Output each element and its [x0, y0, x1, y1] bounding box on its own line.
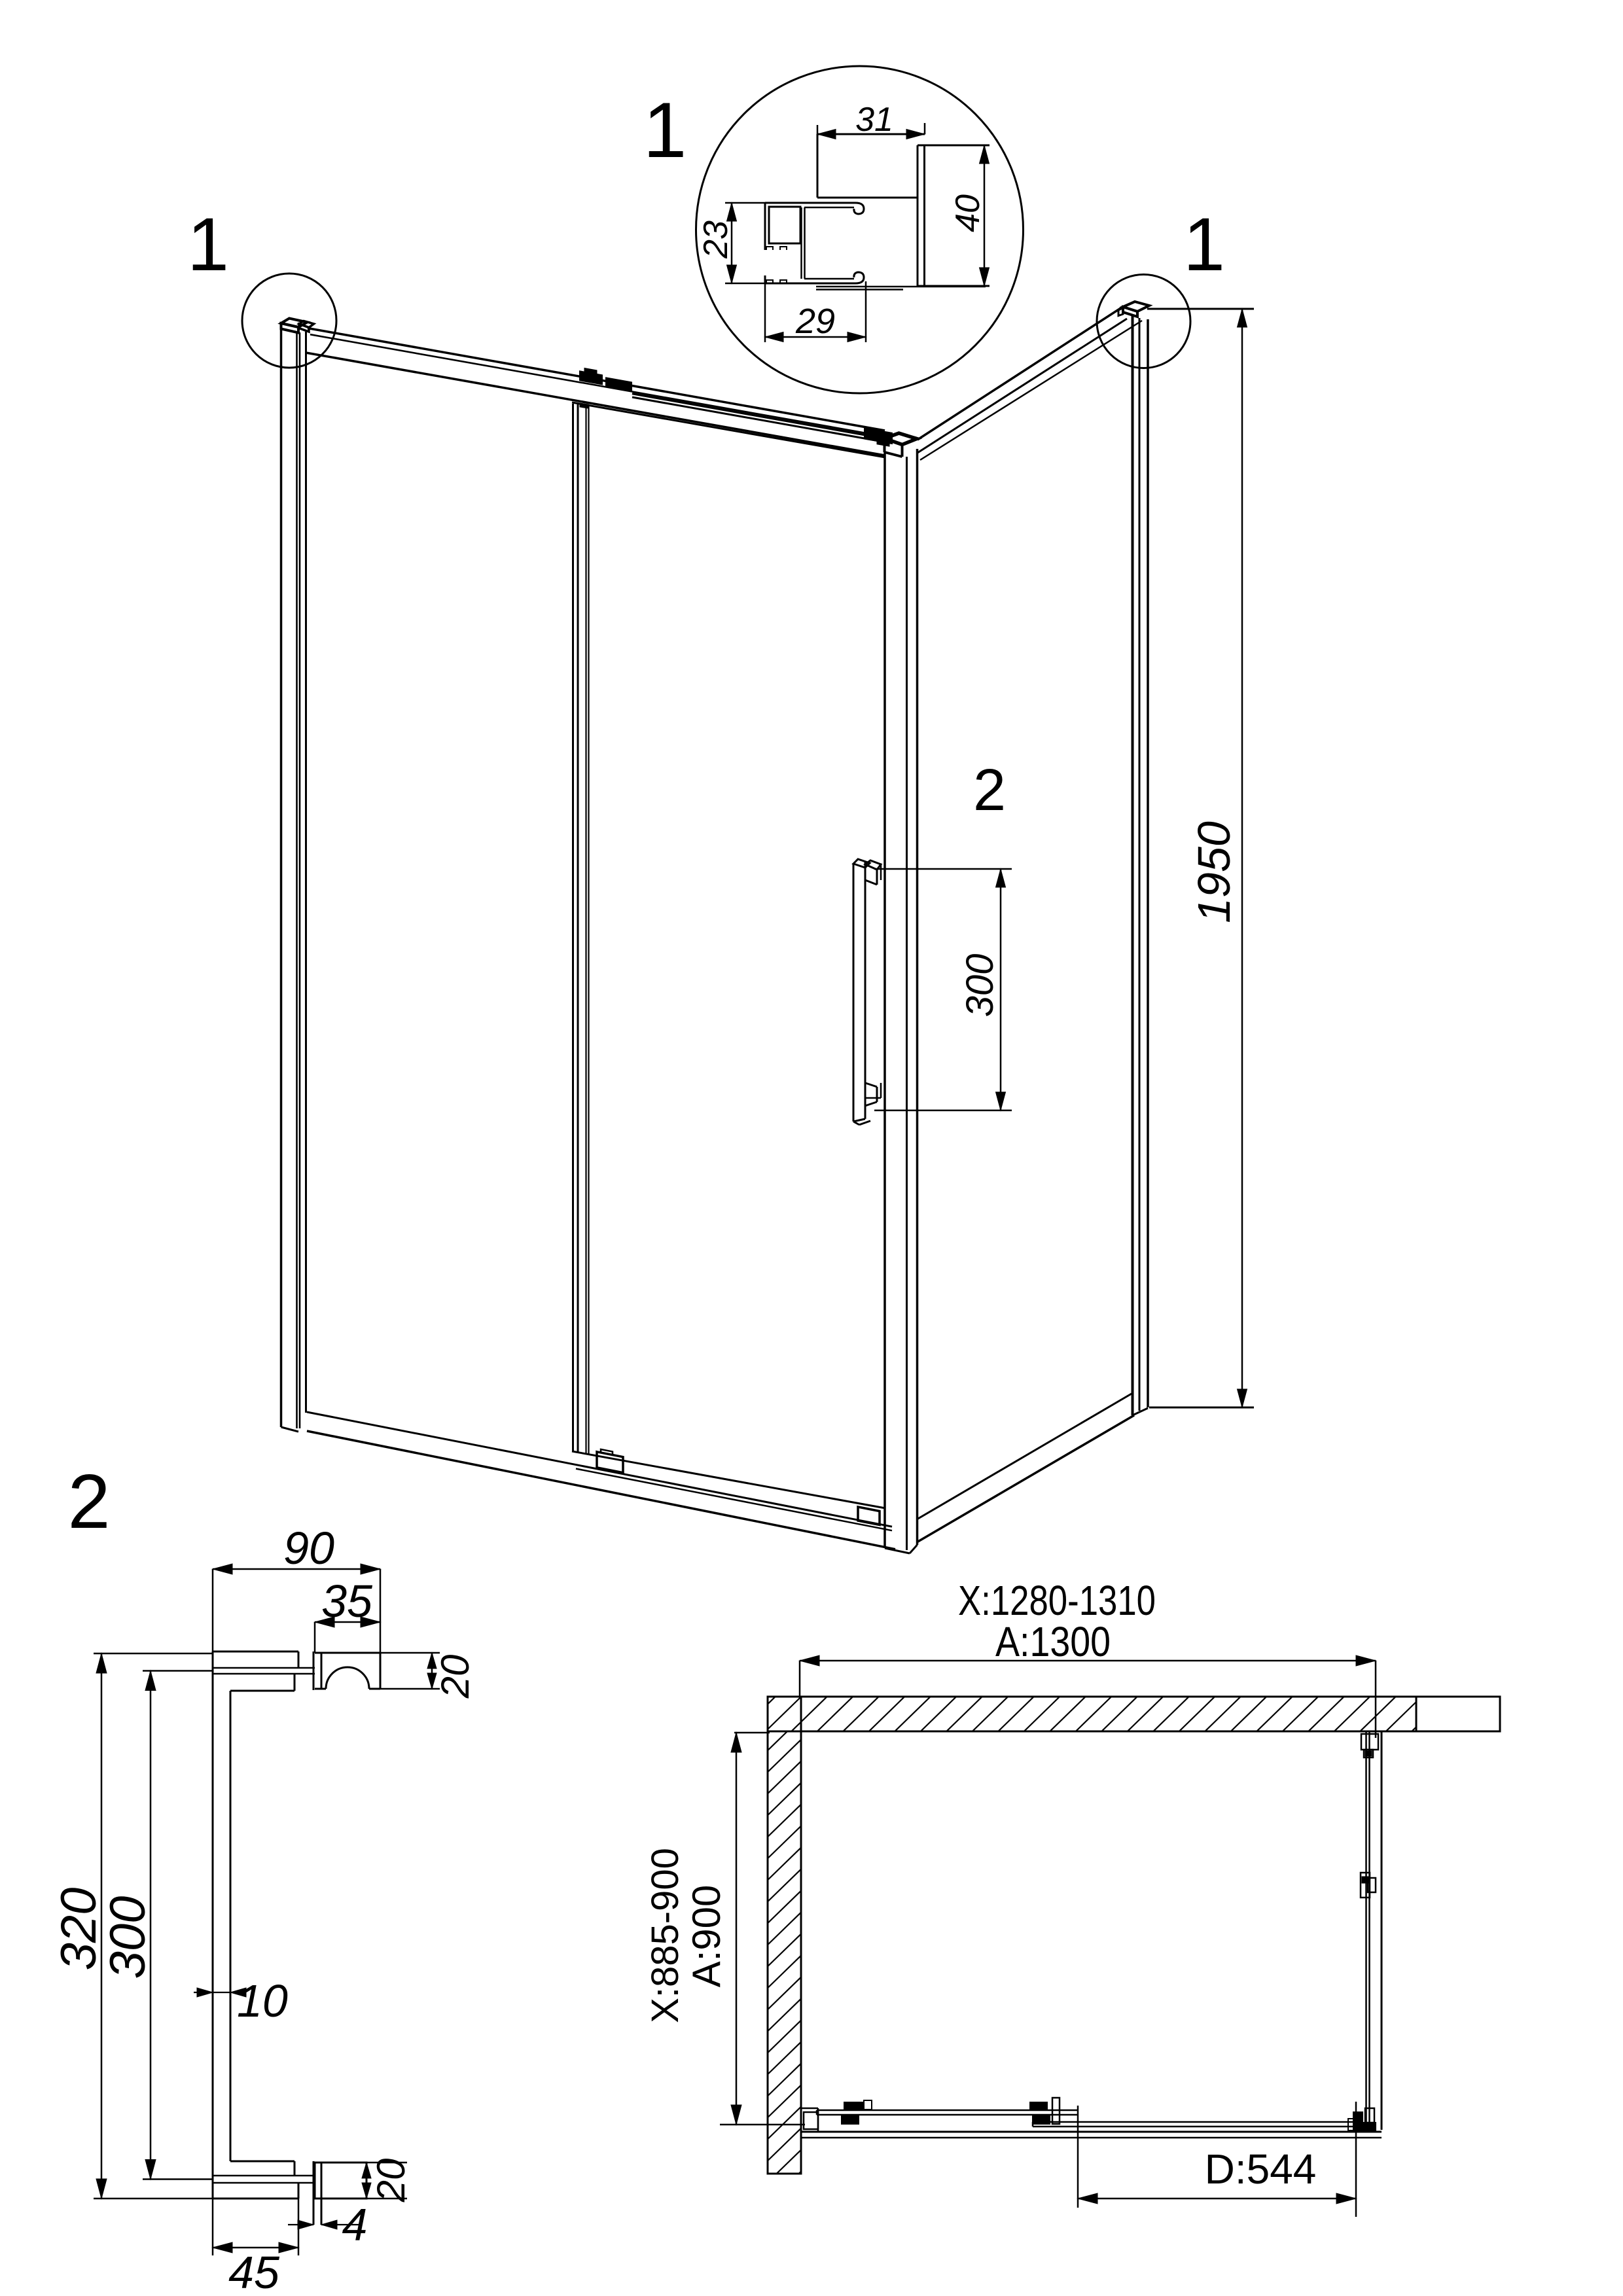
svg-text:1950: 1950 — [1188, 821, 1240, 923]
svg-text:320: 320 — [51, 1888, 107, 1971]
svg-text:1: 1 — [1183, 203, 1225, 287]
svg-text:40: 40 — [949, 194, 987, 232]
svg-text:300: 300 — [959, 954, 1001, 1017]
svg-text:10: 10 — [237, 1975, 288, 2026]
svg-text:1: 1 — [643, 86, 687, 174]
svg-text:D:544: D:544 — [1205, 2146, 1317, 2193]
svg-text:20: 20 — [369, 2159, 413, 2203]
svg-text:2: 2 — [973, 758, 1006, 823]
svg-text:4: 4 — [342, 2199, 368, 2250]
svg-text:2: 2 — [67, 1458, 110, 1544]
svg-text:A:900: A:900 — [685, 1885, 728, 1988]
svg-text:1: 1 — [187, 203, 229, 287]
svg-text:X:885-900: X:885-900 — [644, 1848, 687, 2023]
svg-text:35: 35 — [321, 1576, 373, 1627]
svg-text:29: 29 — [795, 302, 835, 341]
svg-text:300: 300 — [100, 1896, 156, 1979]
svg-text:X:1280-1310: X:1280-1310 — [958, 1577, 1156, 1624]
svg-text:20: 20 — [433, 1655, 477, 1699]
svg-text:45: 45 — [228, 2247, 280, 2296]
svg-text:90: 90 — [283, 1523, 334, 1574]
svg-text:23: 23 — [697, 221, 735, 259]
svg-text:A:1300: A:1300 — [995, 1618, 1111, 1665]
svg-text:31: 31 — [855, 101, 893, 139]
